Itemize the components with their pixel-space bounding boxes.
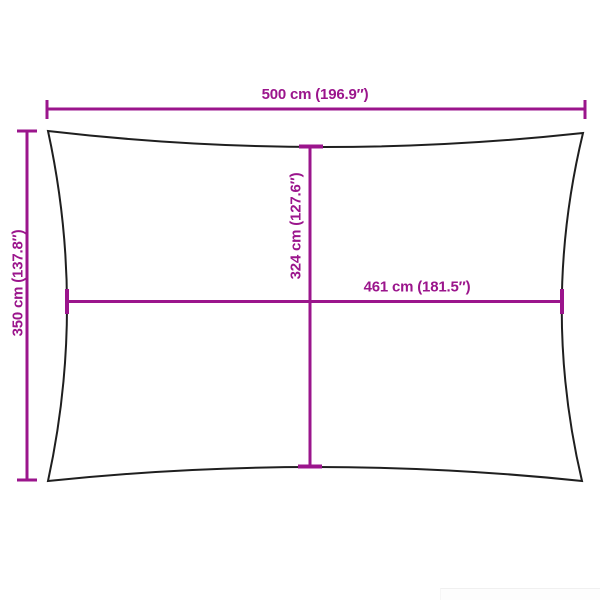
left-height-label: 350 cm (137.8″) [11,230,26,337]
dimension-diagram: 500 cm (196.9″) 350 cm (137.8″) 324 cm (… [0,0,600,600]
top-width-label: 500 cm (196.9″) [262,87,369,102]
inner-height-label: 324 cm (127.6″) [289,173,304,280]
inner-width-label: 461 cm (181.5″) [364,280,471,295]
inner-width-dimension [67,289,562,314]
sail-outline [48,131,583,481]
faint-corner-box [440,588,600,600]
